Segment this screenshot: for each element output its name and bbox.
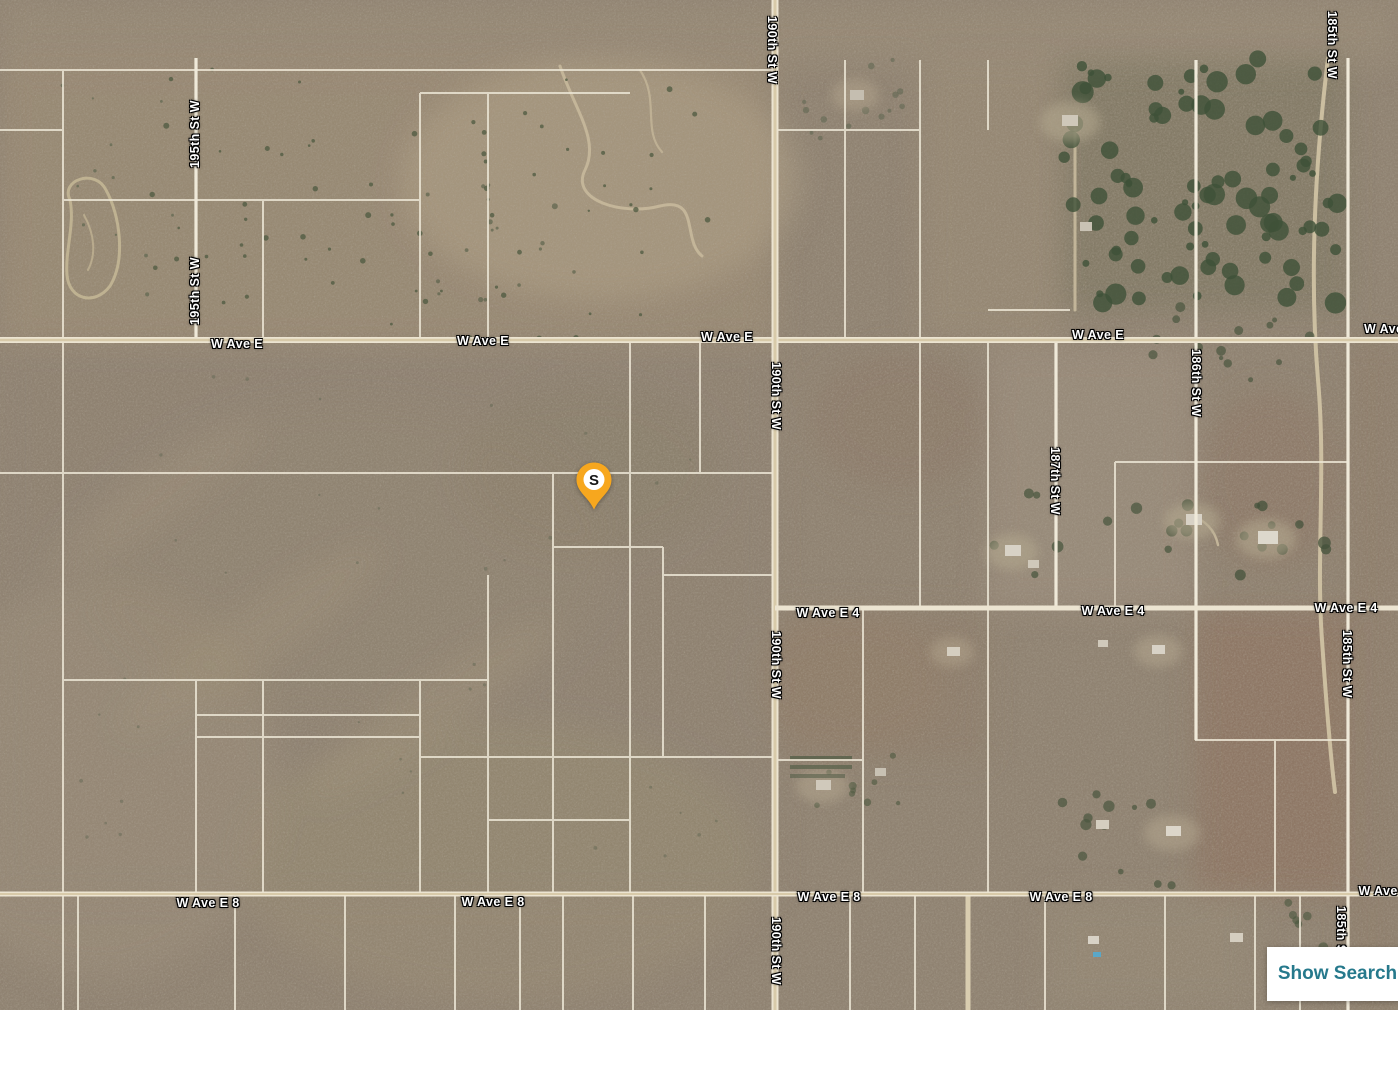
bottom-whitespace	[0, 1010, 1398, 1080]
show-search-label: Show Search	[1278, 963, 1397, 985]
satellite-map[interactable]: 195th St W195th St WW Ave EW Ave EW Ave …	[0, 0, 1398, 1010]
show-search-button[interactable]: Show Search	[1267, 947, 1398, 1001]
pin-letter: S	[589, 472, 599, 489]
satellite-terrain-imagery	[0, 0, 1398, 1010]
map-marker-pin[interactable]: S	[575, 461, 613, 511]
